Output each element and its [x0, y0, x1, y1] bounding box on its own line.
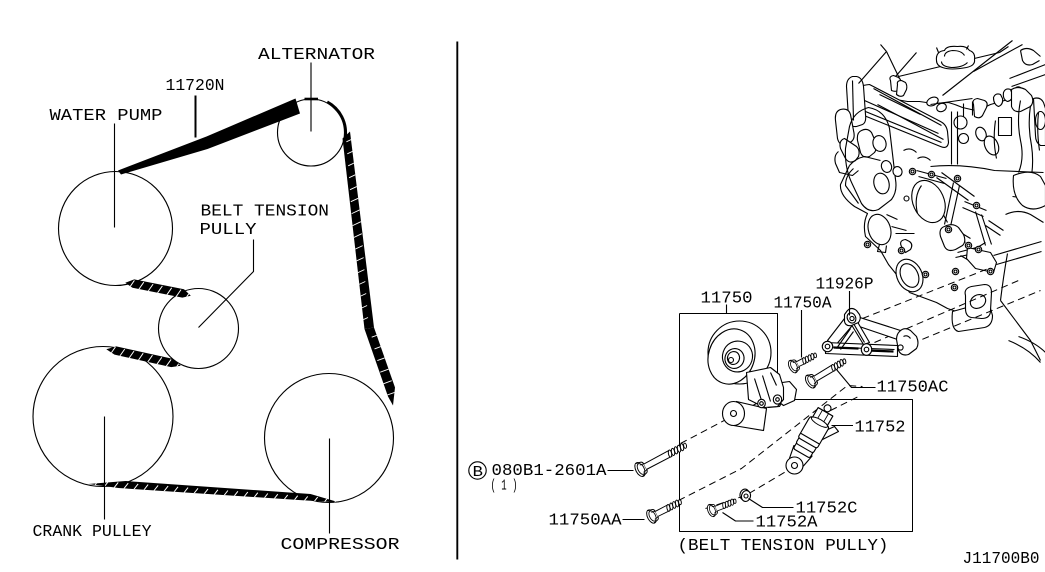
svg-text:BELT TENSION: BELT TENSION — [201, 202, 330, 221]
svg-text:PULLY: PULLY — [200, 220, 257, 239]
svg-text:11720N: 11720N — [166, 76, 225, 95]
svg-text:11752: 11752 — [855, 418, 906, 437]
svg-text:11750A: 11750A — [774, 294, 832, 313]
svg-text:B: B — [473, 464, 484, 481]
svg-text:11750AA: 11750AA — [549, 511, 622, 530]
svg-text:11750AC: 11750AC — [877, 378, 949, 397]
svg-text:COMPRESSOR: COMPRESSOR — [281, 535, 400, 554]
svg-text:( 1 ): ( 1 ) — [491, 478, 518, 495]
svg-text:11752A: 11752A — [756, 513, 818, 532]
svg-text:J11700B0: J11700B0 — [963, 549, 1040, 568]
svg-text:ALTERNATOR: ALTERNATOR — [258, 45, 375, 64]
svg-text:WATER PUMP: WATER PUMP — [50, 106, 163, 125]
svg-text:(BELT TENSION PULLY): (BELT TENSION PULLY) — [678, 536, 889, 555]
svg-text:CRANK PULLEY: CRANK PULLEY — [33, 522, 152, 541]
svg-text:11926P: 11926P — [816, 275, 874, 294]
